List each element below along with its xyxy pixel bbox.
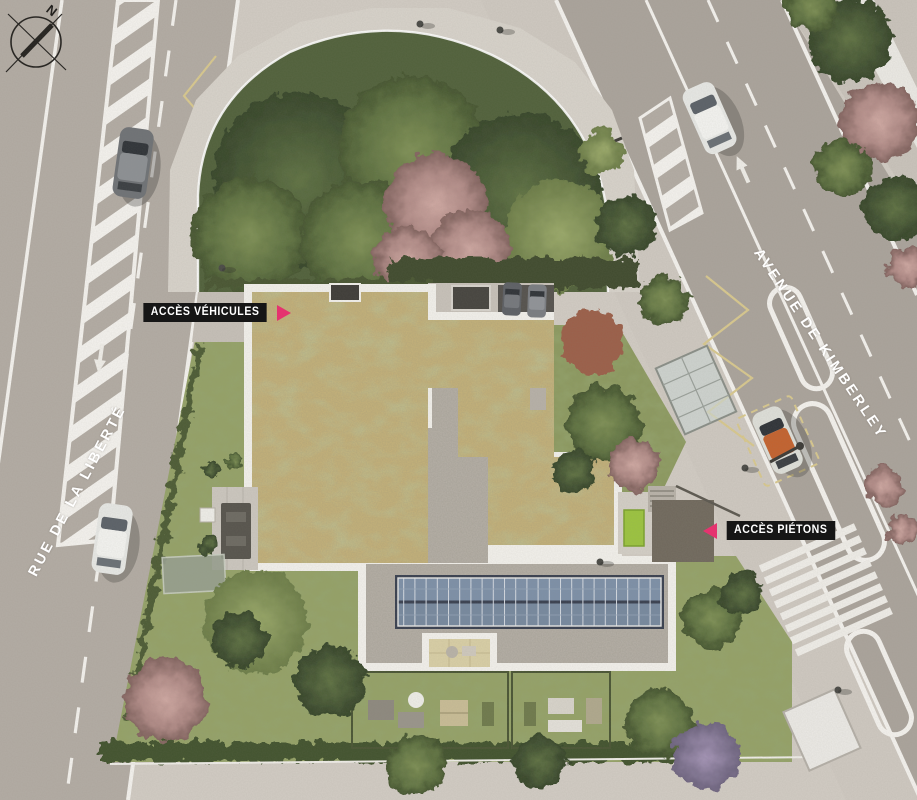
arrow-right-icon [277,305,291,321]
arrow-left-icon [703,523,717,539]
site-plan-canvas: ACCÈS VÉHICULES ACCÈS PIÉTONS RUE DE LA … [0,0,917,800]
access-pedestrians-label: ACCÈS PIÉTONS [703,521,840,540]
site-plan-graphic [0,0,917,800]
access-pedestrians-text: ACCÈS PIÉTONS [727,521,835,540]
texture-overlay [0,0,917,800]
access-vehicles-text: ACCÈS VÉHICULES [143,303,267,322]
access-vehicles-label: ACCÈS VÉHICULES [138,303,291,322]
